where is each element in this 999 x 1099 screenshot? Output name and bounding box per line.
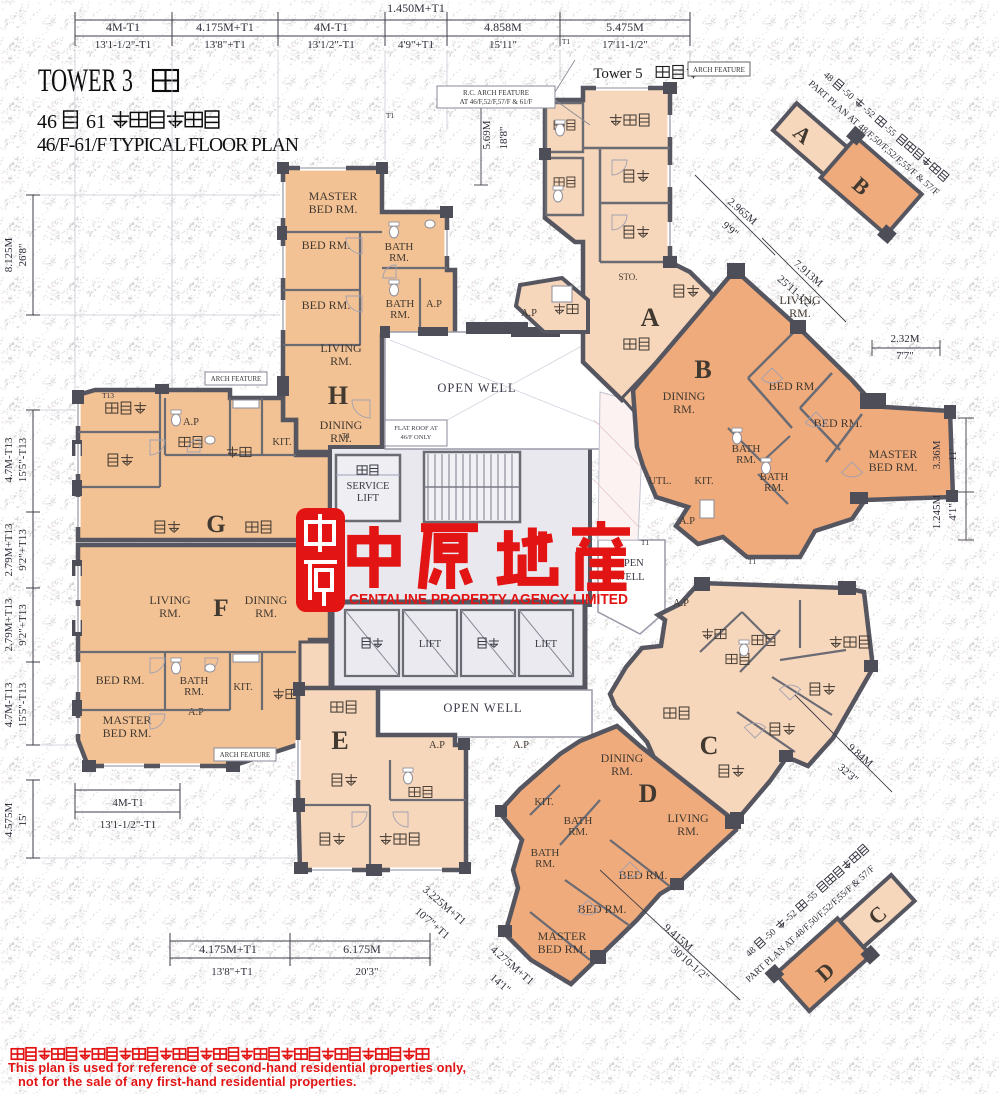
svg-text:RM.: RM. (736, 454, 756, 466)
svg-text:BED RM.: BED RM. (96, 673, 145, 687)
svg-text:T1: T1 (342, 431, 351, 440)
svg-text:RM.: RM. (568, 826, 588, 838)
svg-text:STO.: STO. (618, 272, 637, 282)
svg-text:26'8": 26'8" (17, 244, 29, 267)
svg-text:A: A (641, 303, 660, 332)
svg-text:9'2"+T13: 9'2"+T13 (17, 529, 29, 571)
svg-text:T1: T1 (562, 37, 571, 46)
svg-text:5.475M: 5.475M (606, 20, 644, 34)
svg-text:T1: T1 (386, 111, 395, 120)
svg-text:E: E (331, 726, 348, 755)
svg-text:RM.: RM. (677, 824, 699, 838)
svg-text:TOWER 3: TOWER 3 (38, 63, 133, 99)
svg-text:A.P: A.P (673, 598, 689, 609)
svg-text:1.450M+T1: 1.450M+T1 (387, 1, 445, 15)
svg-text:13'8"+T1: 13'8"+T1 (204, 39, 245, 51)
svg-text:A.P: A.P (188, 707, 204, 718)
svg-text:RM.: RM. (330, 354, 352, 368)
svg-text:RM.: RM. (611, 764, 633, 778)
svg-text:OPEN WELL: OPEN WELL (437, 381, 516, 395)
svg-text:20'3": 20'3" (356, 966, 379, 978)
svg-text:4.858M: 4.858M (484, 20, 522, 34)
svg-text:13'1/2"-T1: 13'1/2"-T1 (307, 39, 354, 51)
svg-text:4M-T1: 4M-T1 (314, 20, 348, 34)
svg-text:11': 11' (947, 449, 959, 462)
svg-text:KIT.: KIT. (694, 476, 713, 487)
svg-text:UTL.: UTL. (648, 476, 671, 487)
svg-text:8.125M: 8.125M (3, 238, 15, 273)
svg-text:4'1": 4'1" (947, 503, 959, 520)
svg-text:4'9"+T1: 4'9"+T1 (398, 39, 434, 51)
svg-text:BED RM.: BED RM. (309, 202, 358, 216)
svg-text:4.175M+T1: 4.175M+T1 (199, 942, 257, 956)
svg-text:BED RM.: BED RM. (302, 238, 351, 252)
svg-text:KIT.: KIT. (233, 682, 252, 693)
svg-text:T13: T13 (102, 391, 114, 400)
svg-text:BED RM.: BED RM. (869, 460, 918, 474)
svg-text:This plan is used for referenc: This plan is used for reference of secon… (8, 1060, 466, 1075)
svg-text:Tower 5: Tower 5 (593, 66, 642, 82)
svg-text:13'8"+T1: 13'8"+T1 (211, 966, 252, 978)
svg-text:DINING: DINING (601, 751, 644, 765)
svg-text:RM.: RM. (390, 309, 410, 321)
svg-text:AT 46/F,52/F,57/F & 61/F: AT 46/F,52/F,57/F & 61/F (460, 98, 533, 106)
svg-text:MASTER: MASTER (309, 189, 358, 203)
svg-text:RM.: RM. (159, 606, 181, 620)
svg-text:SERVICE: SERVICE (347, 481, 390, 492)
svg-text:5.69M: 5.69M (481, 120, 493, 149)
svg-text:9'2"+T13: 9'2"+T13 (17, 604, 29, 646)
svg-text:RM.: RM. (389, 252, 409, 264)
svg-text:ARCH FEATURE: ARCH FEATURE (693, 66, 745, 74)
svg-text:46/F-61/F TYPICAL FLOOR PLAN: 46/F-61/F TYPICAL FLOOR PLAN (37, 135, 299, 156)
svg-text:46: 46 (37, 111, 57, 133)
svg-text:LIFT: LIFT (419, 639, 442, 650)
svg-text:KIT.: KIT. (534, 797, 553, 808)
svg-text:KIT.: KIT. (272, 437, 291, 448)
svg-text:1.245M: 1.245M (931, 495, 943, 530)
svg-text:MASTER: MASTER (869, 447, 918, 461)
svg-text:4M-T1: 4M-T1 (106, 20, 140, 34)
svg-text:4.575M: 4.575M (3, 803, 15, 838)
svg-text:not for the sale of any first-: not for the sale of any first-hand resid… (18, 1074, 357, 1089)
svg-text:FLAT ROOF AT: FLAT ROOF AT (394, 425, 438, 432)
svg-text:RM.: RM. (535, 858, 555, 870)
svg-text:17'11-1/2": 17'11-1/2" (602, 39, 648, 51)
svg-text:13'1-1/2"-T1: 13'1-1/2"-T1 (95, 39, 152, 51)
svg-text:RM.: RM. (255, 606, 277, 620)
svg-text:D: D (639, 779, 658, 808)
svg-text:DINING: DINING (663, 389, 706, 403)
svg-text:BED RM.: BED RM. (103, 726, 152, 740)
svg-text:A.P: A.P (429, 740, 445, 751)
svg-text:LIVING: LIVING (667, 811, 709, 825)
svg-text:18'8": 18'8" (498, 127, 510, 150)
svg-text:DINING: DINING (245, 593, 288, 607)
svg-text:BED RM.: BED RM. (578, 902, 627, 916)
svg-text:A.P: A.P (183, 417, 199, 428)
svg-text:61: 61 (86, 111, 106, 133)
svg-text:4.7M-T13: 4.7M-T13 (3, 682, 15, 727)
svg-text:ARCH FEATURE: ARCH FEATURE (211, 376, 261, 383)
svg-text:15'5"-T13: 15'5"-T13 (17, 682, 29, 727)
svg-text:A.P: A.P (521, 308, 537, 319)
svg-text:46/F ONLY: 46/F ONLY (401, 434, 432, 441)
svg-text:B: B (694, 355, 711, 384)
svg-text:ARCH FEATURE: ARCH FEATURE (220, 752, 270, 759)
svg-text:2.79M+T13: 2.79M+T13 (3, 598, 15, 651)
svg-text:6.175M: 6.175M (343, 942, 381, 956)
svg-text:R.C. ARCH FEATURE: R.C. ARCH FEATURE (463, 89, 529, 97)
svg-text:3.36M: 3.36M (931, 440, 943, 469)
svg-text:2.32M: 2.32M (890, 333, 919, 345)
svg-text:T1: T1 (641, 538, 650, 547)
svg-text:LIFT: LIFT (535, 639, 558, 650)
svg-text:4.7M-T13: 4.7M-T13 (3, 437, 15, 482)
svg-text:15'5"-T13: 15'5"-T13 (17, 437, 29, 482)
svg-text:G: G (206, 511, 225, 538)
svg-text:A.P: A.P (513, 740, 529, 751)
svg-text:RM.: RM. (673, 402, 695, 416)
svg-text:LIFT: LIFT (357, 493, 380, 504)
svg-text:BED RM.: BED RM. (538, 942, 587, 956)
svg-text:DINING: DINING (320, 418, 363, 432)
svg-text:4M-T1: 4M-T1 (112, 797, 143, 809)
svg-text:LIVING: LIVING (149, 593, 191, 607)
svg-text:13'1-1/2"-T1: 13'1-1/2"-T1 (100, 819, 157, 831)
svg-text:BED RM.: BED RM. (619, 868, 668, 882)
svg-text:2.79M+T13: 2.79M+T13 (3, 523, 15, 576)
svg-text:A.P: A.P (679, 516, 695, 527)
svg-text:RM.: RM. (764, 482, 784, 494)
svg-text:MASTER: MASTER (103, 713, 152, 727)
svg-text:4.175M+T1: 4.175M+T1 (196, 20, 254, 34)
svg-text:15'11": 15'11" (489, 39, 517, 51)
svg-text:LIVING: LIVING (320, 341, 362, 355)
svg-text:OPEN WELL: OPEN WELL (443, 701, 522, 715)
svg-text:BED RM.: BED RM. (769, 379, 818, 393)
svg-text:RM.: RM. (184, 686, 204, 698)
svg-text:A.P: A.P (426, 299, 442, 310)
svg-text:H: H (328, 381, 348, 410)
svg-text:T1: T1 (748, 557, 757, 566)
svg-text:BED RM.: BED RM. (302, 298, 351, 312)
svg-text:C: C (700, 731, 719, 760)
svg-text:F: F (213, 595, 228, 622)
svg-text:15': 15' (17, 813, 29, 826)
svg-text:CENTALINE PROPERTY AGENCY LIMI: CENTALINE PROPERTY AGENCY LIMITED (349, 592, 628, 608)
svg-text:7'7": 7'7" (896, 350, 913, 362)
svg-text:MASTER: MASTER (538, 929, 587, 943)
